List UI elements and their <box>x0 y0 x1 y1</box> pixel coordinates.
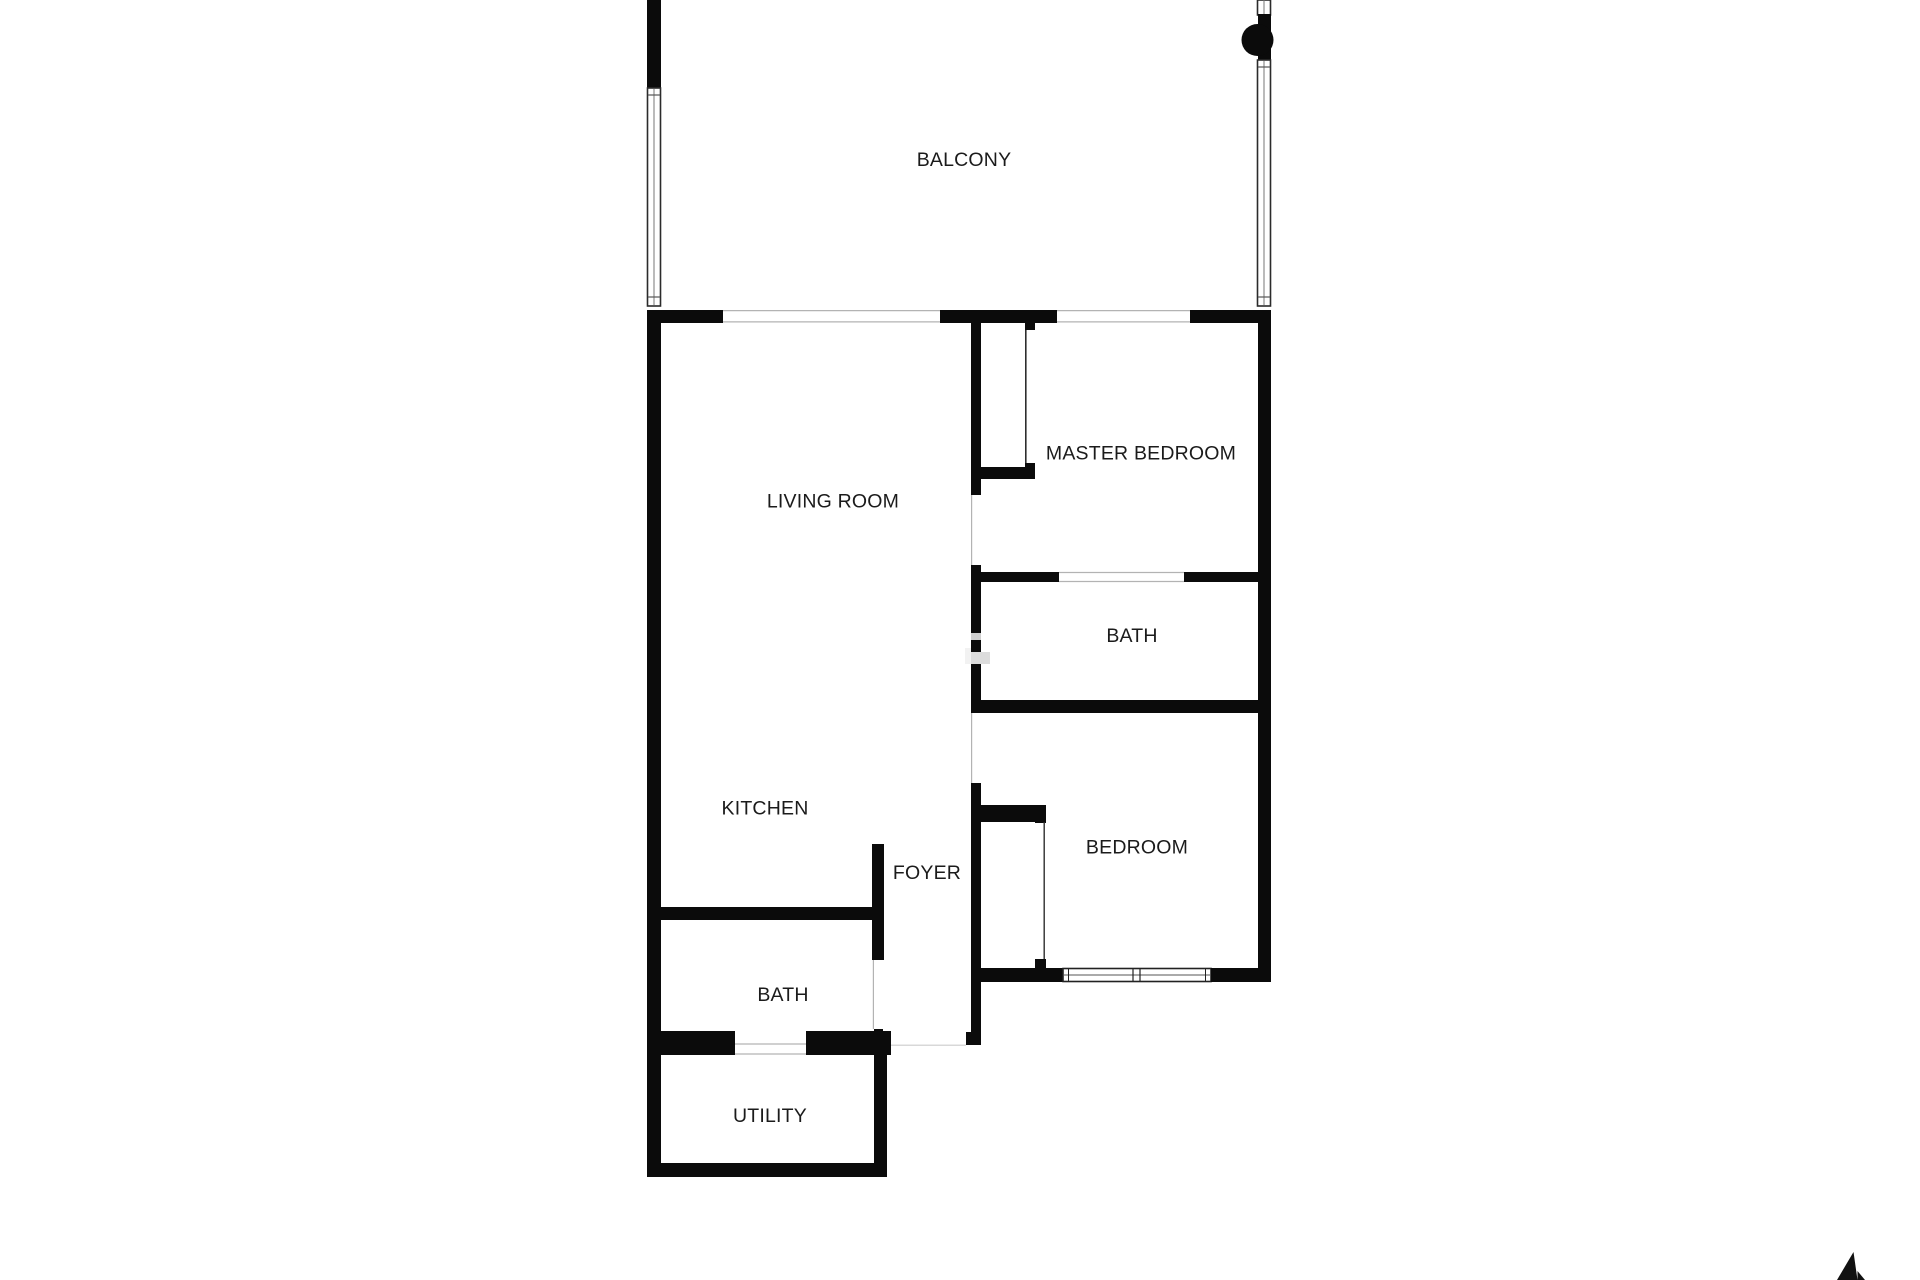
svg-text:BALCONY: BALCONY <box>917 149 1012 171</box>
svg-text:LIVING ROOM: LIVING ROOM <box>767 491 899 513</box>
svg-text:BATH: BATH <box>757 984 808 1006</box>
svg-text:BATH: BATH <box>1106 625 1157 647</box>
svg-text:FOYER: FOYER <box>893 862 961 884</box>
svg-text:KITCHEN: KITCHEN <box>722 798 809 820</box>
svg-text:MASTER BEDROOM: MASTER BEDROOM <box>1046 443 1236 465</box>
svg-text:UTILITY: UTILITY <box>733 1105 807 1127</box>
svg-text:BEDROOM: BEDROOM <box>1086 837 1188 859</box>
